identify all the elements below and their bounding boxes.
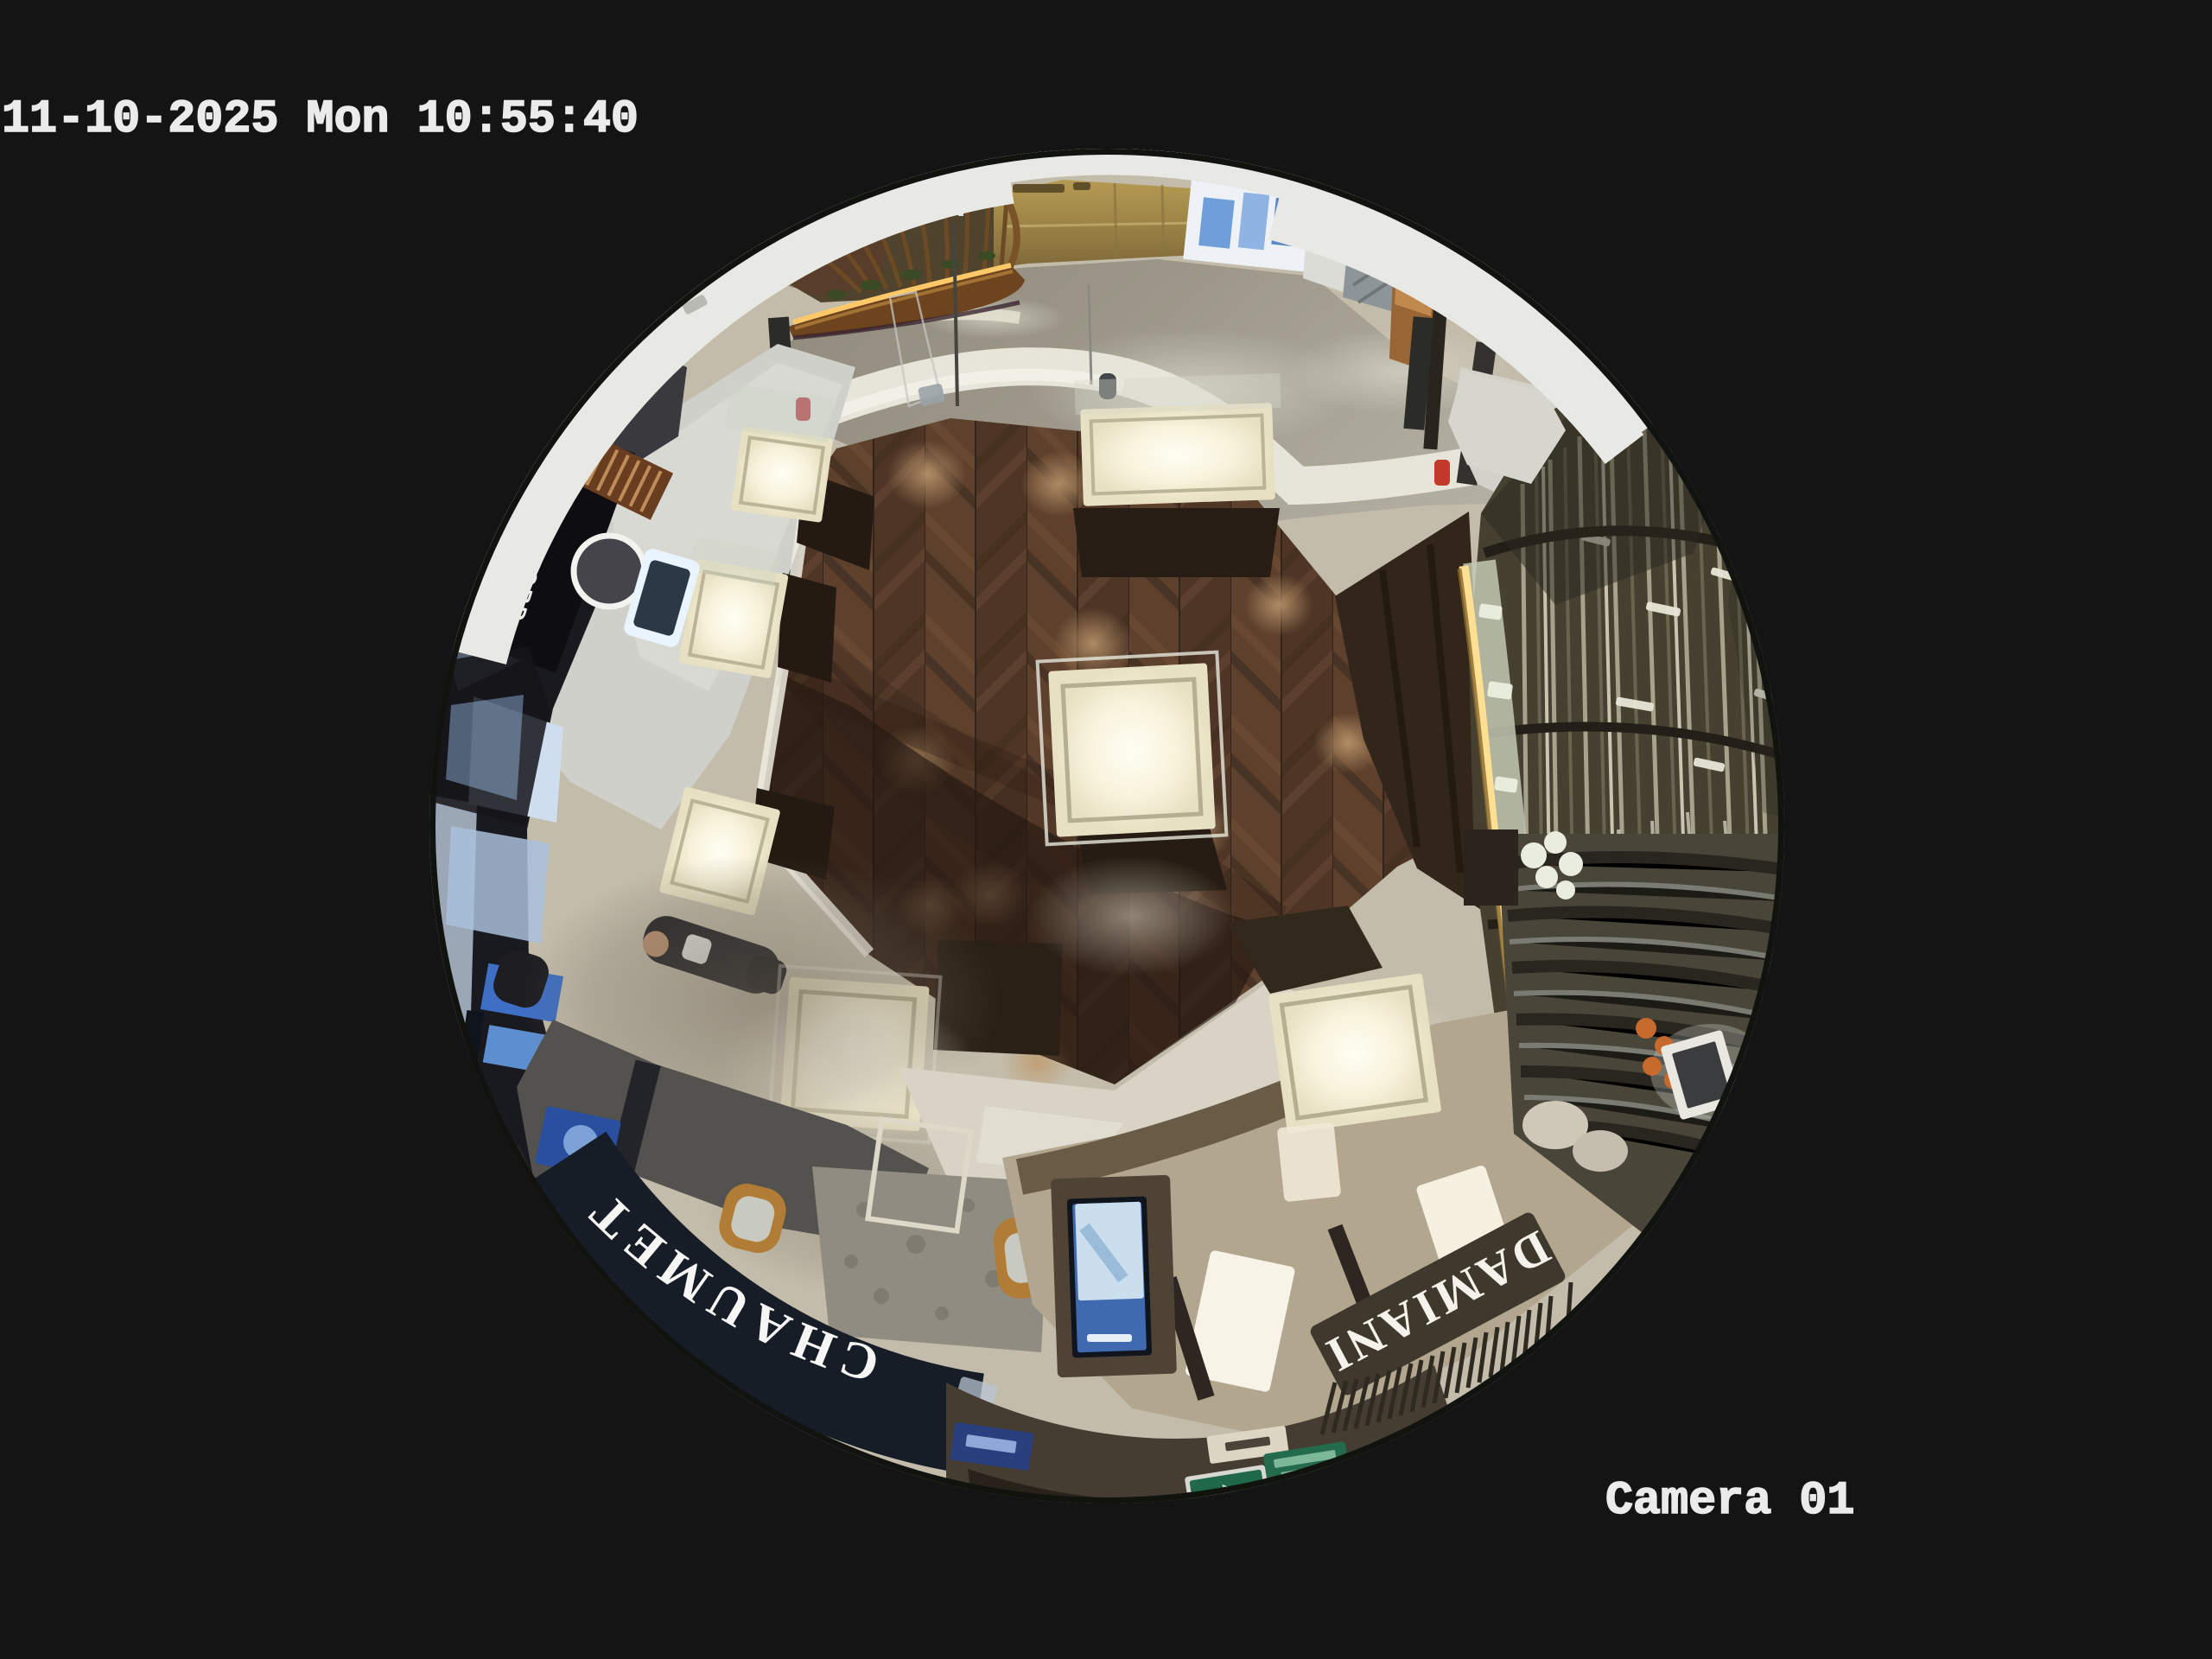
svg-text:11-10-2025 Mon 10:55:40: 11-10-2025 Mon 10:55:40 xyxy=(2,94,639,146)
svg-text:Camera 01: Camera 01 xyxy=(1605,1476,1854,1528)
